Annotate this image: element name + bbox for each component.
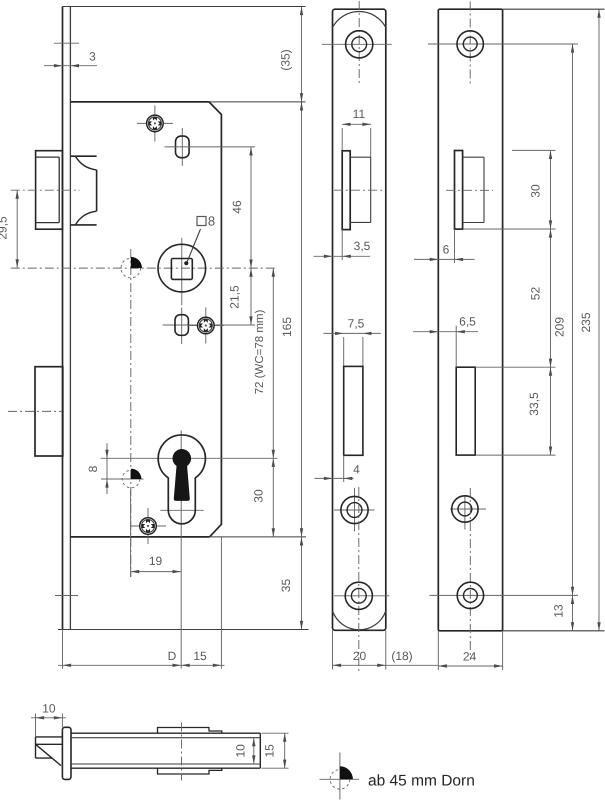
svg-text:21,5: 21,5: [228, 285, 242, 309]
svg-text:15: 15: [263, 744, 277, 758]
svg-text:46: 46: [230, 200, 244, 214]
svg-text:(18): (18): [391, 649, 412, 663]
svg-text:8: 8: [86, 465, 100, 472]
svg-text:35: 35: [279, 579, 293, 593]
svg-text:235: 235: [579, 312, 593, 332]
svg-text:165: 165: [280, 317, 294, 337]
svg-text:52: 52: [529, 287, 543, 301]
svg-text:13: 13: [552, 604, 566, 618]
svg-text:(35): (35): [279, 49, 293, 70]
svg-text:6: 6: [443, 243, 450, 257]
svg-text:8: 8: [208, 214, 215, 229]
svg-text:6,5: 6,5: [459, 315, 476, 329]
svg-text:ab 45 mm Dorn: ab 45 mm Dorn: [368, 773, 475, 790]
svg-text:10: 10: [42, 702, 56, 716]
svg-text:15: 15: [193, 649, 207, 663]
svg-text:D: D: [168, 649, 177, 663]
svg-text:7,5: 7,5: [348, 317, 365, 331]
svg-text:3: 3: [89, 50, 96, 64]
svg-text:10: 10: [234, 744, 248, 758]
svg-text:20: 20: [353, 649, 367, 663]
svg-text:29,5: 29,5: [0, 216, 10, 240]
svg-text:33,5: 33,5: [527, 392, 541, 416]
svg-text:11: 11: [353, 107, 366, 121]
svg-text:3,5: 3,5: [354, 239, 371, 253]
svg-text:30: 30: [529, 184, 543, 198]
svg-text:4: 4: [353, 463, 360, 477]
svg-text:72 (WC=78 mm): 72 (WC=78 mm): [254, 309, 266, 394]
svg-text:19: 19: [149, 554, 163, 568]
svg-text:24: 24: [463, 650, 477, 664]
svg-text:30: 30: [252, 489, 266, 503]
svg-text:209: 209: [553, 317, 567, 337]
